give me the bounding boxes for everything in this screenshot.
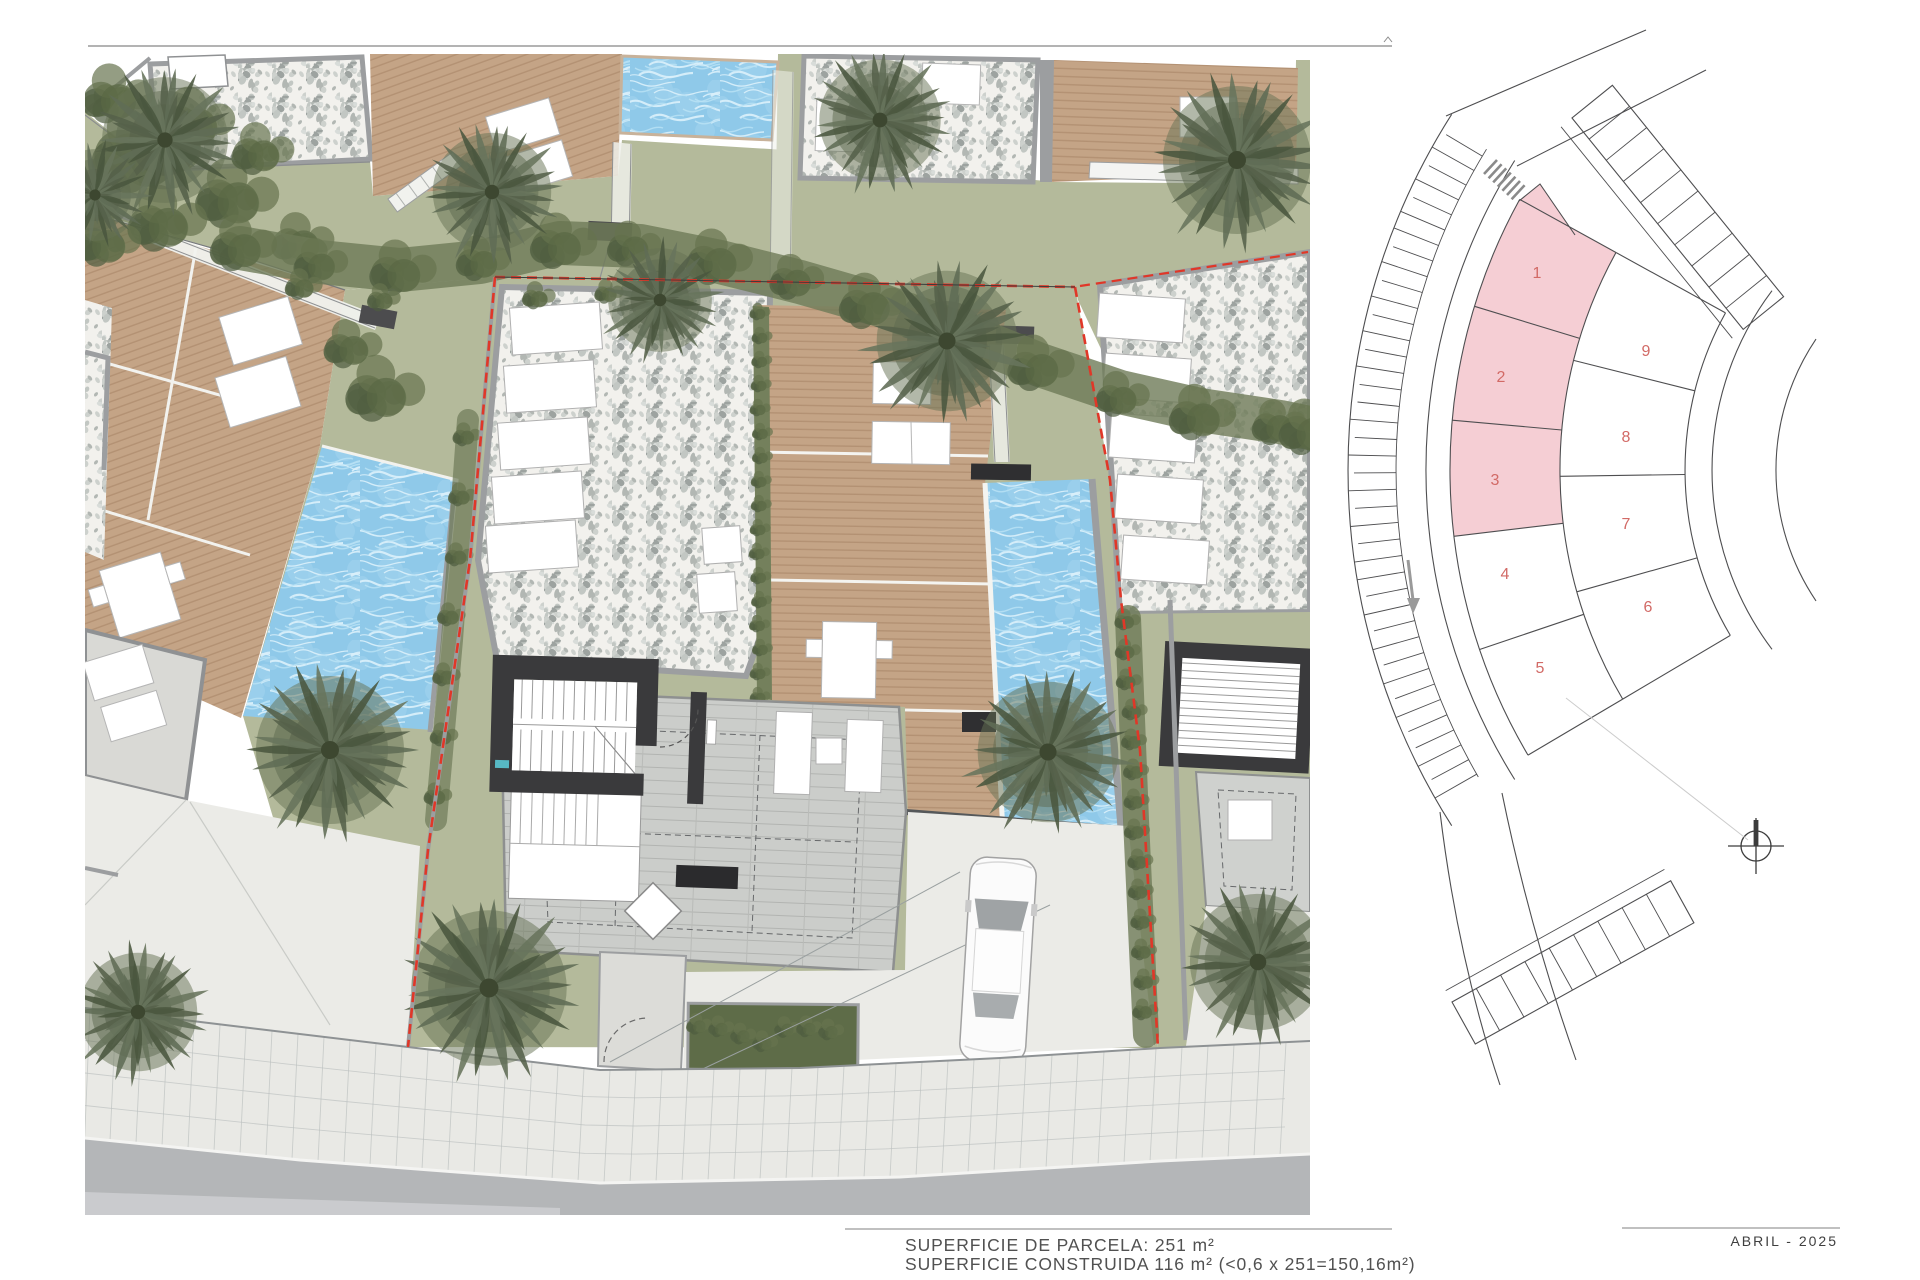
svg-text:6: 6 [1644, 599, 1653, 616]
svg-text:ABRIL - 2025: ABRIL - 2025 [1730, 1233, 1838, 1249]
svg-text:1: 1 [1533, 265, 1542, 282]
svg-text:5: 5 [1536, 660, 1545, 677]
svg-text:SUPERFICIE DE PARCELA: 251 m²: SUPERFICIE DE PARCELA: 251 m² [905, 1235, 1215, 1255]
svg-text:8: 8 [1622, 429, 1631, 446]
svg-text:4: 4 [1501, 566, 1510, 583]
svg-text:7: 7 [1622, 516, 1631, 533]
svg-text:SUPERFICIE CONSTRUIDA 116 m² (: SUPERFICIE CONSTRUIDA 116 m² (<0,6 x 251… [905, 1254, 1416, 1274]
svg-text:2: 2 [1497, 369, 1506, 386]
svg-text:3: 3 [1491, 472, 1500, 489]
svg-text:9: 9 [1642, 343, 1651, 360]
